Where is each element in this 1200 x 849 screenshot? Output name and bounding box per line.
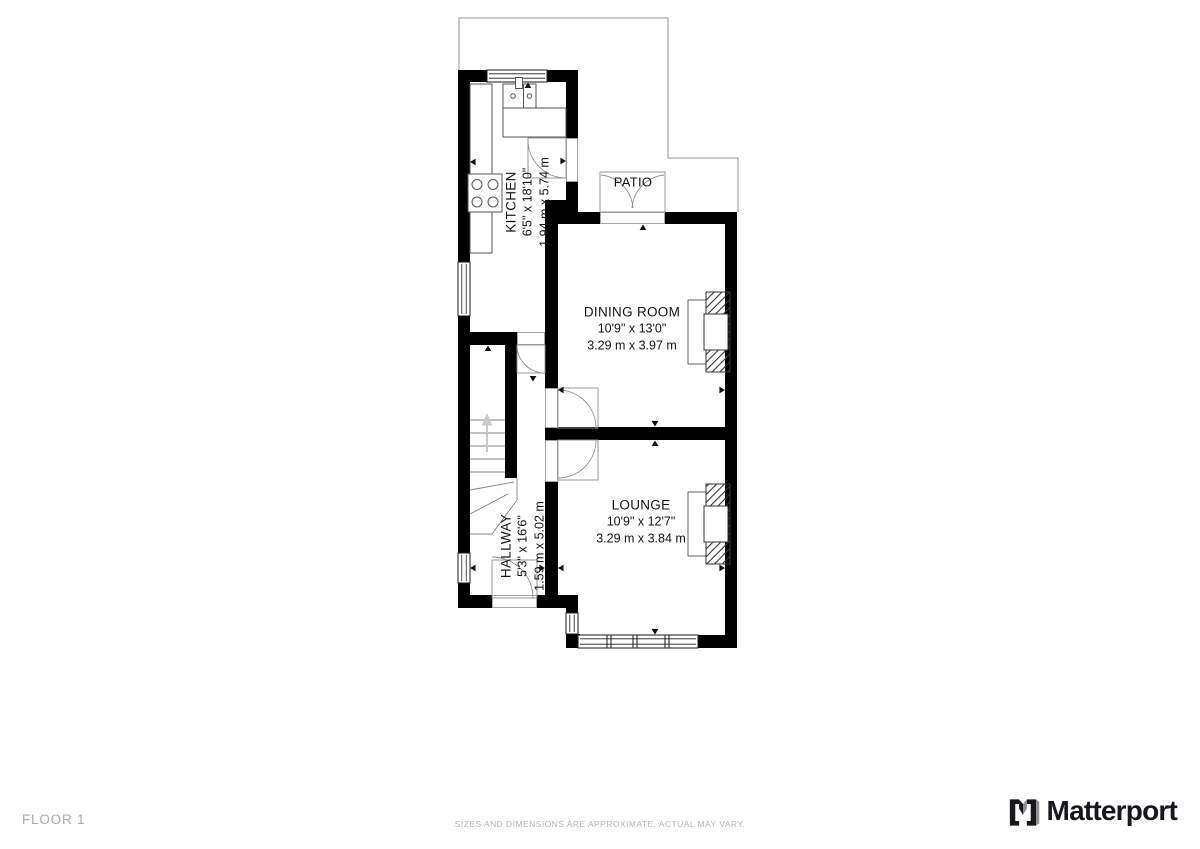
kitchen-side-window <box>458 262 470 316</box>
room-label-hallway: HALLWAY 5'3" x 16'6" 1.59 m x 5.02 m <box>498 501 549 591</box>
room-name: PATIO <box>614 174 653 191</box>
kitchen-hallway-door <box>517 345 545 373</box>
stove <box>468 174 502 212</box>
room-size-metric: 1.59 m x 5.02 m <box>532 501 549 591</box>
room-label-kitchen: KITCHEN 6'5" x 18'10" 1.94 m x 5.74 m <box>503 157 554 247</box>
floor-label: FLOOR 1 <box>22 812 85 827</box>
matterport-wordmark: Matterport <box>1047 794 1177 828</box>
lounge-bay-window <box>578 635 698 648</box>
windows <box>458 70 698 648</box>
disclaimer-text: SIZES AND DIMENSIONS ARE APPROXIMATE, AC… <box>455 819 745 829</box>
faucet <box>516 78 523 89</box>
room-size-metric: 1.94 m x 5.74 m <box>537 157 554 247</box>
room-size-imperial: 5'3" x 16'6" <box>515 501 532 591</box>
room-name: LOUNGE <box>596 497 686 514</box>
fireplace-lounge <box>688 484 730 564</box>
matterport-icon <box>1006 794 1040 828</box>
room-label-dining-room: DINING ROOM 10'9" x 13'0" 3.29 m x 3.97 … <box>584 304 680 355</box>
kitchen-counter-left-lower <box>470 212 492 253</box>
room-name: KITCHEN <box>503 157 520 247</box>
fireplace-dining <box>688 292 730 372</box>
floorplan-page: KITCHEN 6'5" x 18'10" 1.94 m x 5.74 m DI… <box>0 0 1200 849</box>
hallway-side-window <box>458 553 470 583</box>
room-size-imperial: 10'9" x 12'7" <box>596 514 686 531</box>
room-name: HALLWAY <box>498 501 515 591</box>
room-size-imperial: 10'9" x 13'0" <box>584 321 680 338</box>
lounge-side-window <box>566 613 578 634</box>
kitchen-counter-right <box>503 108 566 137</box>
room-size-imperial: 6'5" x 18'10" <box>520 157 537 247</box>
floorplan-drawing <box>0 0 1200 849</box>
lounge-door <box>558 440 598 480</box>
matterport-logo: Matterport <box>1006 794 1177 828</box>
room-label-patio: PATIO <box>614 174 653 191</box>
dining-room-door <box>558 388 598 428</box>
room-size-metric: 3.29 m x 3.97 m <box>584 338 680 355</box>
room-size-metric: 3.29 m x 3.84 m <box>596 531 686 548</box>
room-label-lounge: LOUNGE 10'9" x 12'7" 3.29 m x 3.84 m <box>596 497 686 548</box>
room-name: DINING ROOM <box>584 304 680 321</box>
